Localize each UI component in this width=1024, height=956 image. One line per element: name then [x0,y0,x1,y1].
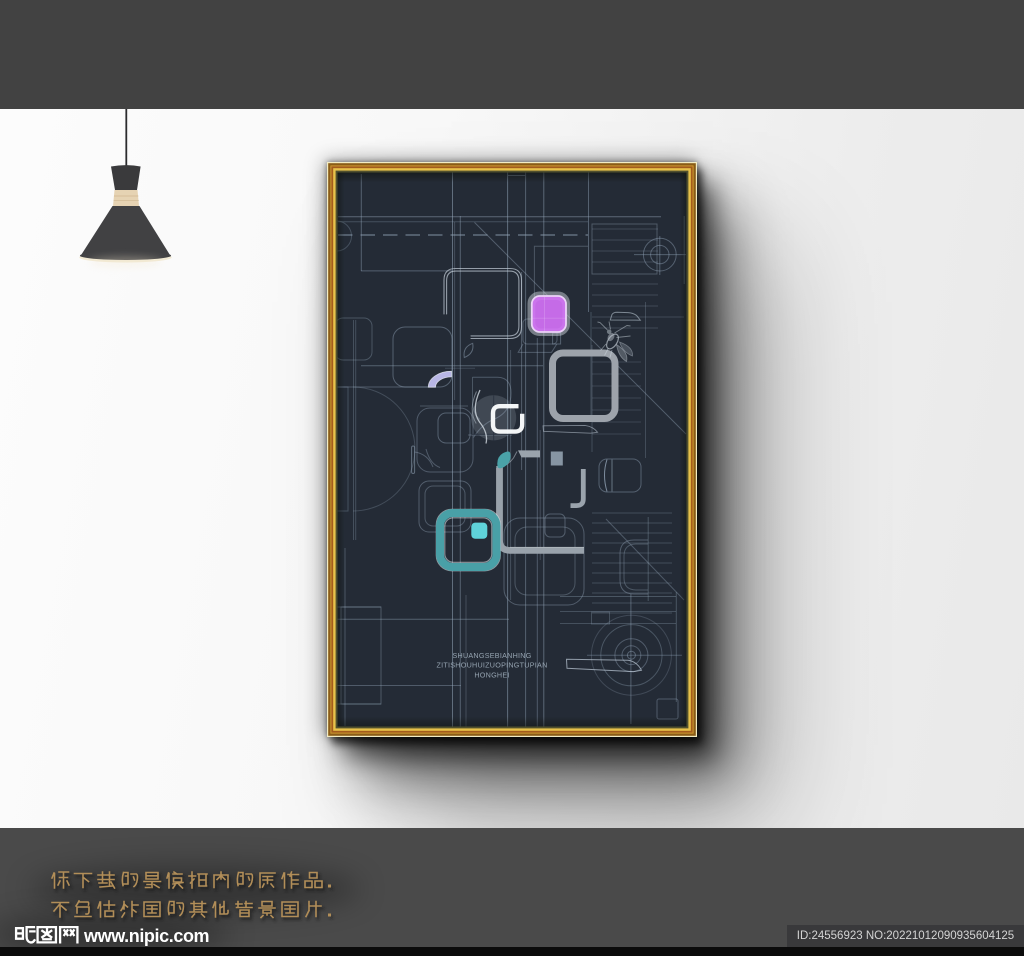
svg-text:HONGHEI: HONGHEI [474,671,509,680]
svg-text:SHUANGSEBIANHING: SHUANGSEBIANHING [452,651,531,660]
svg-text:ZITISHOUHUIZUOPINGTUPIAN: ZITISHOUHUIZUOPINGTUPIAN [436,661,547,670]
